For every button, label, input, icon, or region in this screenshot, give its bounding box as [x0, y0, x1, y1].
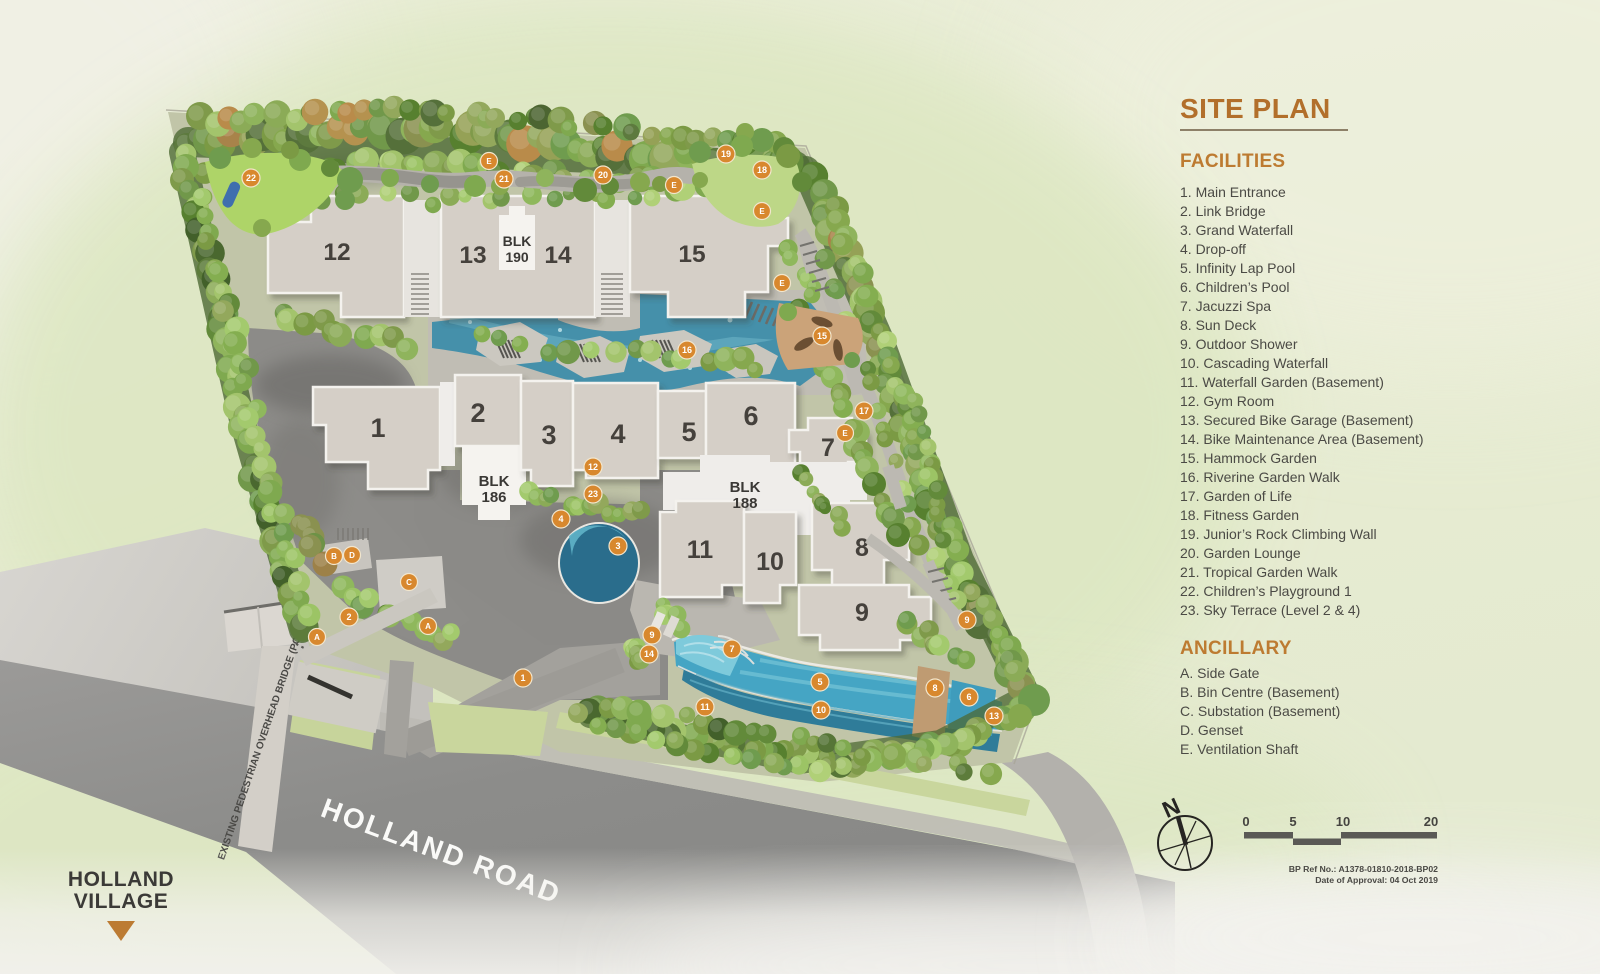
svg-text:4: 4: [610, 419, 625, 449]
svg-text:11: 11: [687, 536, 714, 564]
svg-text:19: 19: [721, 149, 731, 159]
svg-text:1: 1: [370, 413, 385, 443]
svg-text:4: 4: [558, 514, 563, 524]
svg-text:21: 21: [499, 174, 509, 184]
svg-text:0: 0: [1242, 814, 1249, 829]
svg-text:190: 190: [505, 249, 529, 265]
svg-text:6: 6: [966, 692, 971, 702]
svg-text:18: 18: [757, 165, 767, 175]
svg-text:16: 16: [682, 345, 692, 355]
svg-text:Date of Approval: 04 Oct 2019: Date of Approval: 04 Oct 2019: [1315, 875, 1438, 885]
svg-text:7: 7: [729, 644, 734, 654]
svg-text:15: 15: [678, 241, 705, 268]
svg-text:11: 11: [700, 702, 710, 712]
svg-text:6: 6: [743, 401, 758, 431]
svg-text:E: E: [779, 279, 785, 288]
svg-text:B: B: [331, 552, 337, 561]
svg-text:10: 10: [816, 705, 826, 715]
svg-text:186: 186: [481, 489, 506, 506]
svg-text:9: 9: [964, 615, 969, 625]
svg-text:1: 1: [520, 673, 525, 683]
svg-text:5: 5: [817, 677, 822, 687]
svg-text:9: 9: [855, 599, 869, 627]
svg-text:188: 188: [732, 495, 757, 512]
svg-text:BLK: BLK: [479, 473, 510, 490]
svg-text:BLK: BLK: [503, 233, 532, 249]
svg-text:5: 5: [681, 417, 696, 447]
svg-text:13: 13: [459, 242, 486, 269]
svg-text:8: 8: [855, 534, 869, 562]
svg-text:E: E: [486, 157, 492, 166]
svg-text:BLK: BLK: [730, 479, 761, 496]
svg-text:22: 22: [246, 173, 256, 183]
svg-text:10: 10: [1336, 814, 1350, 829]
svg-text:2: 2: [346, 612, 351, 622]
svg-text:15: 15: [817, 331, 827, 341]
svg-text:E: E: [759, 207, 765, 216]
svg-text:8: 8: [932, 683, 937, 693]
svg-text:E: E: [842, 429, 848, 438]
svg-text:C: C: [406, 578, 412, 587]
svg-text:10: 10: [756, 548, 784, 576]
svg-text:14: 14: [544, 242, 572, 269]
svg-text:23: 23: [588, 489, 598, 499]
svg-text:BP Ref No.: A1378-01810-2018-B: BP Ref No.: A1378-01810-2018-BP02: [1289, 864, 1438, 874]
svg-text:VILLAGE: VILLAGE: [74, 890, 169, 913]
svg-text:9: 9: [649, 630, 654, 640]
svg-text:A: A: [425, 622, 431, 631]
svg-text:12: 12: [588, 462, 598, 472]
svg-text:3: 3: [541, 420, 556, 450]
svg-text:3: 3: [615, 541, 620, 551]
svg-text:17: 17: [859, 406, 869, 416]
svg-text:20: 20: [1424, 814, 1438, 829]
svg-text:2: 2: [470, 398, 485, 428]
svg-text:D: D: [349, 551, 355, 560]
svg-text:5: 5: [1289, 814, 1296, 829]
svg-text:14: 14: [644, 649, 654, 659]
svg-text:20: 20: [598, 170, 608, 180]
svg-text:E: E: [671, 181, 677, 190]
svg-text:12: 12: [323, 239, 350, 266]
svg-text:7: 7: [821, 434, 835, 462]
svg-text:HOLLAND: HOLLAND: [68, 868, 174, 891]
svg-text:13: 13: [989, 711, 999, 721]
svg-text:A: A: [314, 633, 320, 642]
